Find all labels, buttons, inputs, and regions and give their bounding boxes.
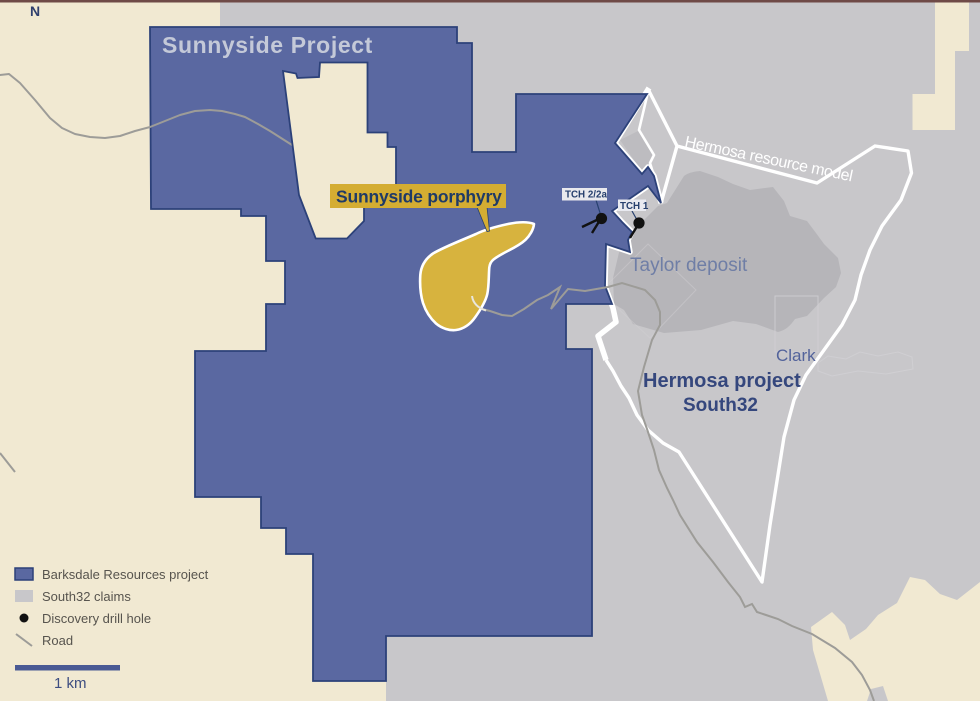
svg-text:Sunnyside porphyry: Sunnyside porphyry xyxy=(336,187,502,207)
svg-text:1 km: 1 km xyxy=(54,675,87,692)
svg-text:South32: South32 xyxy=(683,395,758,416)
svg-text:South32 claims: South32 claims xyxy=(42,589,131,604)
svg-text:Clark: Clark xyxy=(776,346,816,365)
svg-text:TCH 2/2a: TCH 2/2a xyxy=(565,190,607,201)
svg-text:Sunnyside Project: Sunnyside Project xyxy=(162,32,373,58)
svg-text:Discovery drill hole: Discovery drill hole xyxy=(42,611,151,626)
svg-text:Road: Road xyxy=(42,633,73,648)
svg-text:N: N xyxy=(30,3,40,19)
svg-text:Taylor deposit: Taylor deposit xyxy=(630,255,748,276)
svg-text:Barksdale Resources project: Barksdale Resources project xyxy=(42,567,209,582)
svg-text:Hermosa project: Hermosa project xyxy=(643,370,801,392)
svg-text:TCH 1: TCH 1 xyxy=(620,201,649,212)
